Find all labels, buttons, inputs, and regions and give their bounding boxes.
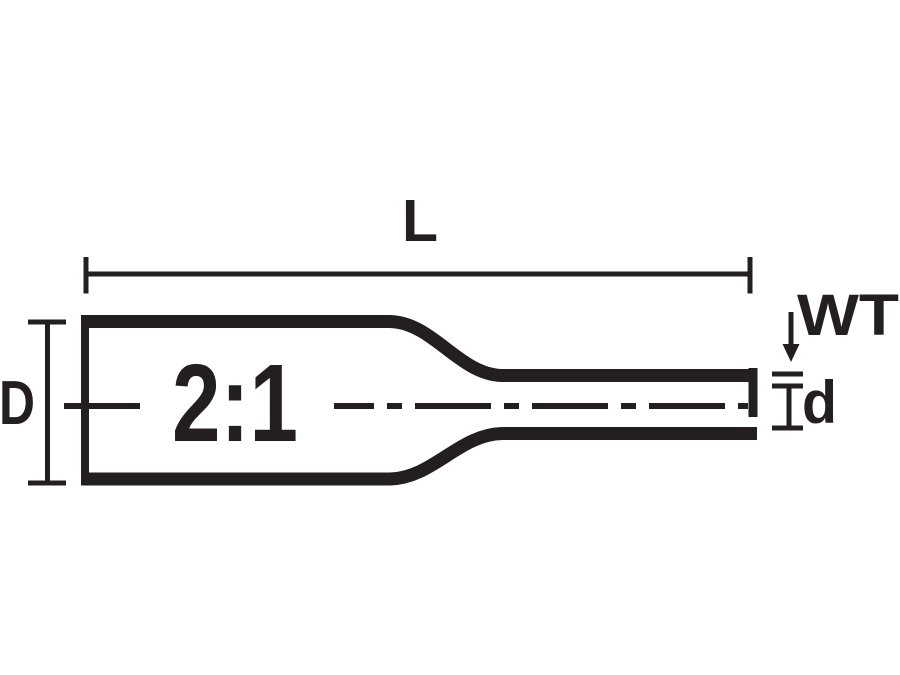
expanded-diameter-label: D [0, 369, 35, 438]
shrink-tubing-diagram: 2:1 L D WT [0, 0, 900, 675]
wall-thickness-dimension: WT [772, 283, 899, 374]
recovered-diameter-label: d [802, 369, 837, 436]
expanded-diameter-dimension: D [0, 322, 66, 483]
ink-group: 2:1 L D WT [0, 188, 899, 486]
diagram-canvas: 2:1 L D WT [0, 0, 900, 675]
length-label: L [402, 188, 438, 254]
wall-thickness-label: WT [797, 283, 899, 348]
shrink-ratio-label: 2:1 [172, 342, 298, 465]
recovered-diameter-dimension: d [772, 369, 837, 436]
length-dimension: L [86, 188, 750, 294]
